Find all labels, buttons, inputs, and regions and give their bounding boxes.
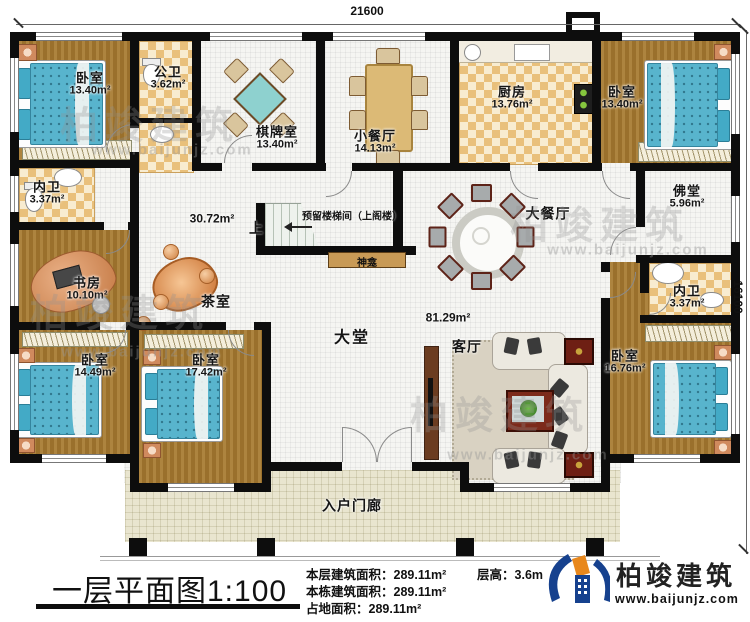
- room-name: 大堂: [334, 331, 370, 348]
- room-area: 13.40m²: [602, 99, 643, 111]
- lobby-area-label: 81.29m²: [426, 312, 471, 325]
- nightstand: [17, 438, 35, 453]
- room-label-bedroom-r: 卧室16.76m²: [605, 349, 646, 374]
- wall: [640, 263, 649, 293]
- stair-up-label: 上: [249, 218, 263, 238]
- hall-area-label: 30.72m²: [190, 213, 235, 226]
- floor-height-value: 3.6m: [515, 568, 544, 582]
- window: [210, 32, 302, 41]
- room-area: 14.49m²: [75, 367, 116, 379]
- wall: [262, 462, 342, 471]
- room-area: 13.76m²: [492, 99, 533, 111]
- wall: [128, 222, 139, 230]
- room-label-bedroom-tl: 卧室13.40m²: [70, 71, 111, 96]
- window: [10, 244, 19, 306]
- stat-value: 289.11m²: [394, 585, 447, 599]
- room-label-bath-right: 内卫3.37m²: [670, 284, 705, 309]
- bed: [650, 360, 732, 438]
- room-name: 卧室: [602, 85, 643, 99]
- bed: [644, 60, 734, 150]
- room-label-kitchen: 厨房13.76m²: [492, 85, 533, 110]
- dimension-top-value: 21600: [350, 4, 383, 18]
- wall: [630, 163, 740, 171]
- room-area: 14.13m²: [354, 143, 396, 155]
- room-area: 30.72m²: [190, 213, 235, 226]
- chair: [349, 76, 366, 96]
- window: [731, 354, 740, 434]
- wall: [352, 163, 446, 171]
- floor-height: 层高：3.6m: [477, 564, 543, 583]
- nightstand: [17, 348, 35, 363]
- room-area: 3.62m²: [151, 79, 186, 91]
- plate: [464, 44, 481, 61]
- kitchen-sink: [514, 44, 550, 61]
- room-label-small-dining: 小餐厅14.13m²: [354, 129, 396, 154]
- wall: [601, 262, 610, 272]
- stat-value: 289.11m²: [394, 568, 447, 582]
- stove: [574, 84, 593, 114]
- stat-label: 本栋建筑面积：: [306, 585, 394, 599]
- room-area: 3.37m²: [30, 194, 65, 206]
- chair: [411, 110, 428, 130]
- room-name: 公卫: [151, 65, 186, 79]
- floor-height-label: 层高：: [477, 568, 515, 582]
- window: [36, 32, 122, 41]
- chair: [471, 184, 492, 202]
- watermark-brand: 柏竣建筑: [410, 385, 590, 440]
- closet: [645, 325, 733, 342]
- dimension-right-value: 16100: [731, 280, 745, 313]
- window: [10, 58, 19, 132]
- window: [731, 196, 740, 242]
- wall: [538, 163, 600, 171]
- chair: [411, 76, 428, 96]
- wall: [10, 160, 139, 168]
- room-name: 棋牌室: [256, 125, 298, 139]
- wall: [450, 32, 459, 171]
- room-name: 卧室: [605, 349, 646, 363]
- wall: [10, 222, 104, 230]
- watermark-site: www.baijunjz.com: [547, 242, 708, 259]
- room-area: 81.29m²: [426, 312, 471, 325]
- room-label-chess: 棋牌室13.40m²: [256, 125, 298, 150]
- wall: [446, 163, 510, 171]
- room-label-bath-left: 内卫3.37m²: [30, 180, 65, 205]
- nightstand: [714, 345, 732, 360]
- chair: [349, 110, 366, 130]
- shrine-label: 神龛: [357, 258, 377, 269]
- wall: [592, 163, 602, 171]
- logo-svg: [548, 552, 610, 614]
- shrine: 神龛: [328, 252, 406, 268]
- stat-label: 本层建筑面积：: [306, 568, 394, 582]
- side-table: [564, 338, 594, 365]
- stat-row: 占地面积：289.11m²: [306, 598, 421, 617]
- window: [168, 483, 234, 492]
- stair-arrow: [290, 226, 312, 228]
- sink: [652, 262, 684, 284]
- room-name: 厨房: [492, 85, 533, 99]
- title-underline: [36, 604, 300, 609]
- dim-tick: [738, 544, 749, 555]
- porch-column: [456, 538, 474, 556]
- nightstand: [18, 44, 37, 61]
- wall: [254, 322, 271, 330]
- wall: [262, 330, 271, 462]
- wall: [192, 163, 222, 171]
- nightstand: [143, 443, 161, 458]
- dimension-line-right: [746, 30, 747, 554]
- room-name: 客厅: [452, 340, 482, 355]
- wall: [592, 32, 601, 171]
- window: [634, 454, 700, 463]
- chair: [471, 272, 492, 290]
- window: [731, 54, 740, 134]
- stair-note: 预留楼梯间（上阁楼）: [302, 208, 402, 223]
- watermark-brand: 柏竣建筑: [30, 283, 210, 338]
- cushion: [527, 337, 543, 355]
- window: [333, 32, 425, 41]
- exterior-mask: [10, 463, 124, 543]
- watermark-site: www.baijunjz.com: [61, 344, 222, 361]
- wall: [316, 32, 325, 171]
- room-name: 内卫: [670, 284, 705, 298]
- round-table-center: [472, 227, 490, 245]
- brand-name: 柏竣建筑: [616, 556, 736, 593]
- window: [10, 176, 19, 212]
- brand-website: www.baijunjz.com: [615, 592, 739, 606]
- window: [494, 483, 570, 492]
- stat-value: 289.11m²: [369, 602, 422, 616]
- window: [10, 354, 19, 430]
- window: [622, 32, 694, 41]
- exterior-mask: [621, 463, 750, 543]
- room-area: 16.76m²: [605, 363, 646, 375]
- room-area: 17.42m²: [186, 367, 227, 379]
- room-label-lobby: 大堂: [334, 331, 370, 348]
- window: [42, 454, 106, 463]
- wall: [601, 298, 610, 458]
- room-area: 13.40m²: [256, 139, 298, 151]
- watermark-site: www.baijunjz.com: [91, 142, 252, 159]
- porch-column: [257, 538, 275, 556]
- porch-column: [129, 538, 147, 556]
- wall: [252, 163, 325, 171]
- chair: [429, 227, 447, 248]
- room-label-public-bath: 公卫3.62m²: [151, 65, 186, 90]
- room-area: 3.37m²: [670, 298, 705, 310]
- watermark-site: www.baijunjz.com: [447, 447, 608, 464]
- tea-stool: [163, 244, 179, 260]
- room-name: 内卫: [30, 180, 65, 194]
- room-name: 小餐厅: [354, 129, 396, 143]
- floor-plan-sheet: 21600 16100 上 预留楼梯间（上阁楼） 神龛: [0, 0, 750, 622]
- room-name: 入户门廊: [322, 499, 382, 514]
- room-name: 卧室: [70, 71, 111, 85]
- wall: [640, 315, 740, 323]
- room-label-porch: 入户门廊: [322, 499, 382, 514]
- nightstand: [714, 440, 732, 455]
- room-label-living: 客厅: [452, 340, 482, 355]
- stat-label: 占地面积：: [306, 602, 369, 616]
- brand-logo-icon: [548, 552, 610, 619]
- room-label-bedroom-tr: 卧室13.40m²: [602, 85, 643, 110]
- dim-tick: [13, 18, 24, 29]
- chair: [376, 48, 400, 64]
- wall: [316, 163, 326, 171]
- stair-arrow-head: [284, 222, 292, 232]
- dimension-line-top: [16, 24, 738, 25]
